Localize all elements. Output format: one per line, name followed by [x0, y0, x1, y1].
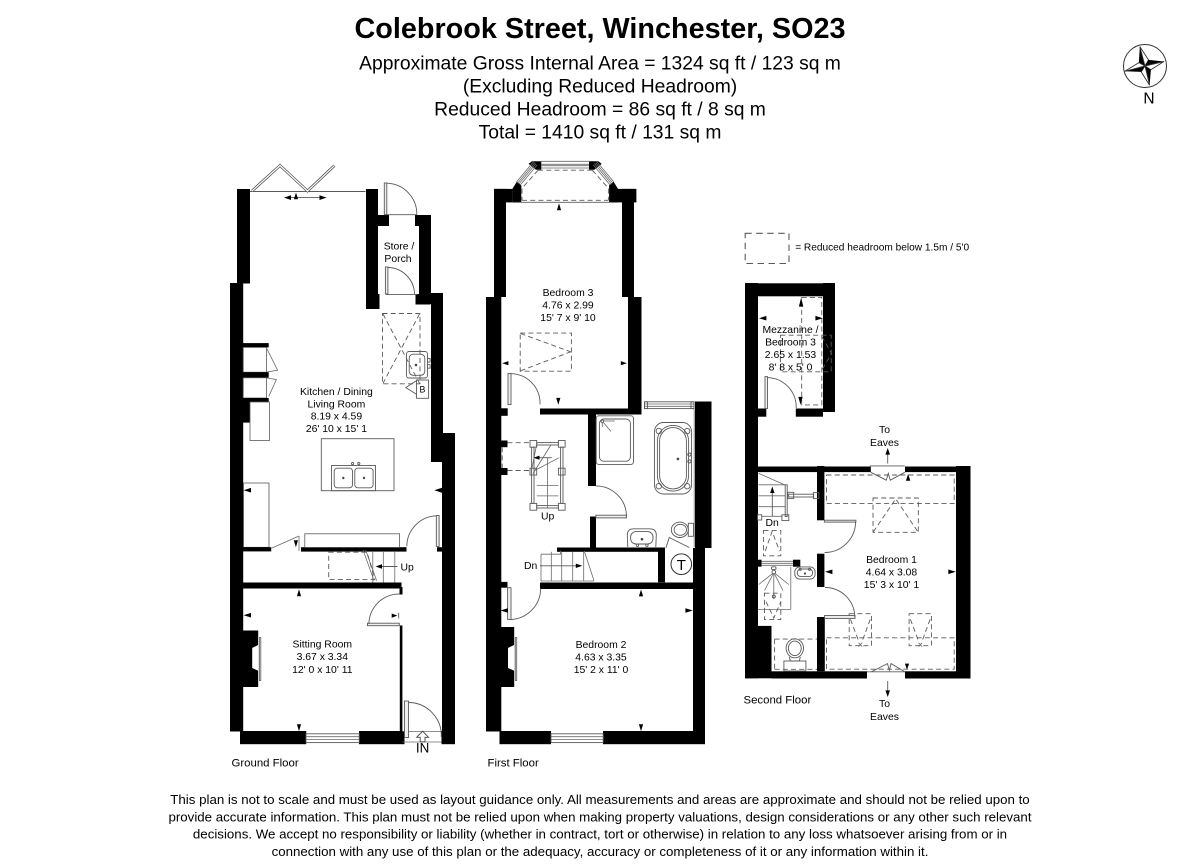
svg-text:= Reduced headroom below 1.5m: = Reduced headroom below 1.5m / 5'0 — [795, 243, 969, 254]
svg-text:To: To — [879, 699, 890, 710]
svg-text:15' 3 x 10' 1: 15' 3 x 10' 1 — [864, 580, 920, 591]
svg-text:Bedroom 1: Bedroom 1 — [866, 555, 917, 566]
svg-text:T: T — [677, 557, 686, 574]
svg-text:N: N — [1143, 91, 1154, 108]
svg-text:12' 0 x 10' 11: 12' 0 x 10' 11 — [292, 665, 353, 676]
svg-text:IN: IN — [416, 740, 429, 755]
svg-text:(Excluding Reduced Headroom): (Excluding Reduced Headroom) — [463, 77, 737, 98]
svg-text:Bedroom 3: Bedroom 3 — [765, 338, 816, 349]
svg-text:Ground Floor: Ground Floor — [232, 758, 299, 770]
svg-text:Mezzanine /: Mezzanine / — [762, 325, 818, 336]
svg-text:Living Room: Living Room — [308, 399, 366, 410]
svg-text:4.64 x 3.08: 4.64 x 3.08 — [866, 568, 918, 579]
svg-text:8.19 x 4.59: 8.19 x 4.59 — [311, 412, 363, 423]
svg-text:Eaves: Eaves — [870, 712, 899, 723]
svg-text:Dn: Dn — [524, 561, 538, 572]
svg-text:4.63 x 3.35: 4.63 x 3.35 — [575, 653, 627, 664]
svg-text:Colebrook Street, Winchester,: Colebrook Street, Winchester, SO23 — [354, 13, 845, 45]
svg-text:Porch: Porch — [384, 254, 411, 265]
svg-text:Approximate Gross Internal Are: Approximate Gross Internal Area = 1324 s… — [359, 54, 841, 75]
svg-text:decisions. We accept no respon: decisions. We accept no responsibility o… — [193, 827, 1007, 842]
svg-text:8' 8 x 5' 0: 8' 8 x 5' 0 — [769, 363, 813, 374]
svg-text:2.65 x 1.53: 2.65 x 1.53 — [765, 350, 817, 361]
svg-text:Bedroom 2: Bedroom 2 — [576, 640, 627, 651]
svg-text:Up: Up — [541, 512, 555, 523]
svg-text:15' 2 x 11' 0: 15' 2 x 11' 0 — [574, 665, 629, 676]
svg-text:First Floor: First Floor — [488, 758, 539, 770]
svg-text:provide accurate information.: provide accurate information. This plan … — [168, 809, 1031, 824]
svg-text:Total = 1410 sq ft / 131 sq m: Total = 1410 sq ft / 131 sq m — [479, 123, 722, 144]
svg-text:Second Floor: Second Floor — [744, 695, 812, 707]
svg-text:4.76 x 2.99: 4.76 x 2.99 — [542, 301, 594, 312]
svg-text:Sitting Room: Sitting Room — [293, 640, 352, 651]
svg-text:3.67 x 3.34: 3.67 x 3.34 — [297, 652, 349, 663]
svg-text:B: B — [420, 384, 426, 394]
svg-text:Reduced Headroom = 86 sq ft /: Reduced Headroom = 86 sq ft / 8 sq m — [434, 100, 766, 121]
svg-text:This plan is not to scale and: This plan is not to scale and must be us… — [170, 792, 1029, 807]
svg-text:connection with any use of thi: connection with any use of this plan or … — [272, 844, 929, 859]
svg-text:To: To — [879, 425, 890, 436]
svg-text:26' 10 x 15' 1: 26' 10 x 15' 1 — [306, 424, 367, 435]
svg-text:Up: Up — [401, 562, 415, 573]
svg-text:Eaves: Eaves — [870, 438, 899, 449]
svg-text:15' 7 x 9' 10: 15' 7 x 9' 10 — [540, 313, 596, 324]
svg-text:Bedroom 3: Bedroom 3 — [543, 288, 594, 299]
svg-text:Dn: Dn — [766, 518, 780, 529]
svg-text:Kitchen / Dining: Kitchen / Dining — [300, 387, 373, 398]
svg-text:Store /: Store / — [384, 242, 415, 253]
